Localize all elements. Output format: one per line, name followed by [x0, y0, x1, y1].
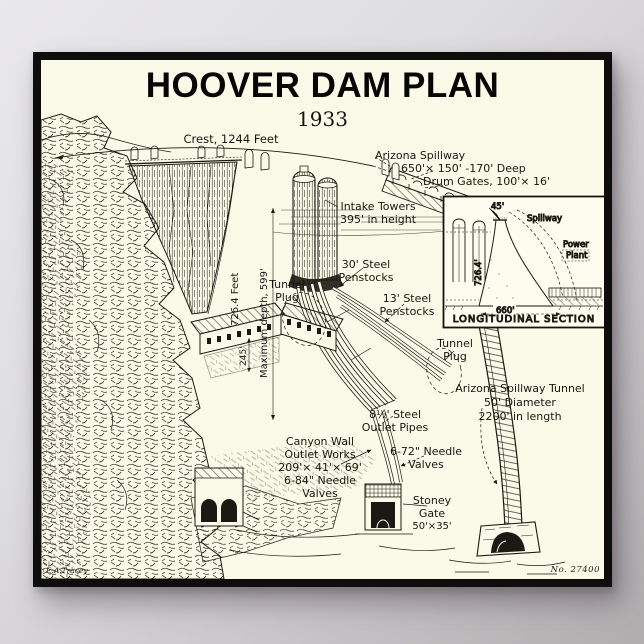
label-outlet-pipes: 8½' Steel Outlet Pipes	[362, 408, 429, 434]
inset-dim-45-label: 45'	[491, 202, 504, 212]
label-13ft-penstocks: 13' Steel Penstocks	[380, 292, 435, 318]
label-tunnel-plug-lower: Tunnel Plug	[437, 337, 473, 363]
label-spillway-tunnel: Arizona Spillway Tunnel 50' Diameter 220…	[455, 382, 584, 424]
artist-signature: E.A.Tracey	[46, 566, 88, 575]
label-canyon-wall-outlet-works: Canyon Wall Outlet Works 209'× 41'× 69' …	[278, 435, 362, 500]
inset-plant-label: Plant	[566, 251, 588, 261]
plate-number: No. 27400	[551, 565, 600, 575]
poster-year: 1933	[41, 107, 604, 131]
poster-paper: 45' Spillway Power Plant 660' 726.4' LON…	[41, 60, 604, 579]
dam-illustration: 45' Spillway Power Plant 660' 726.4' LON…	[41, 60, 604, 579]
inset-power-label: Power	[563, 240, 589, 250]
label-tunnel-plug-upper: Tunnel Plug	[269, 278, 305, 304]
inset-spillway-label: Spillway	[527, 214, 562, 224]
powerhouse-dim-label: 245'	[239, 346, 249, 366]
label-30ft-penstocks: 30' Steel Penstocks	[339, 258, 394, 284]
poster-frame: 45' Spillway Power Plant 660' 726.4' LON…	[33, 52, 612, 587]
label-intake-towers: Intake Towers 395' in height	[340, 200, 416, 226]
stoney-gate-structure	[355, 484, 413, 534]
poster-title: HOOVER DAM PLAN	[41, 66, 604, 106]
label-needle-valves-72: 6-72" Needle Valves	[390, 445, 462, 471]
inset-dim-726-label: 726.4'	[474, 259, 484, 286]
dam-height-label: 726.4 Feet	[230, 273, 241, 326]
inset-caption: LONGITUDINAL SECTION	[453, 314, 595, 325]
longitudinal-section-inset: 45' Spillway Power Plant 660' 726.4' LON…	[444, 197, 605, 328]
label-crest: Crest, 1244 Feet	[184, 133, 279, 146]
label-arizona-spillway: Arizona Spillway 650'× 150' -170' Deep D…	[375, 149, 550, 188]
label-stoney-gate: Stoney Gate 50'×35'	[412, 494, 451, 533]
intake-towers	[288, 166, 343, 292]
